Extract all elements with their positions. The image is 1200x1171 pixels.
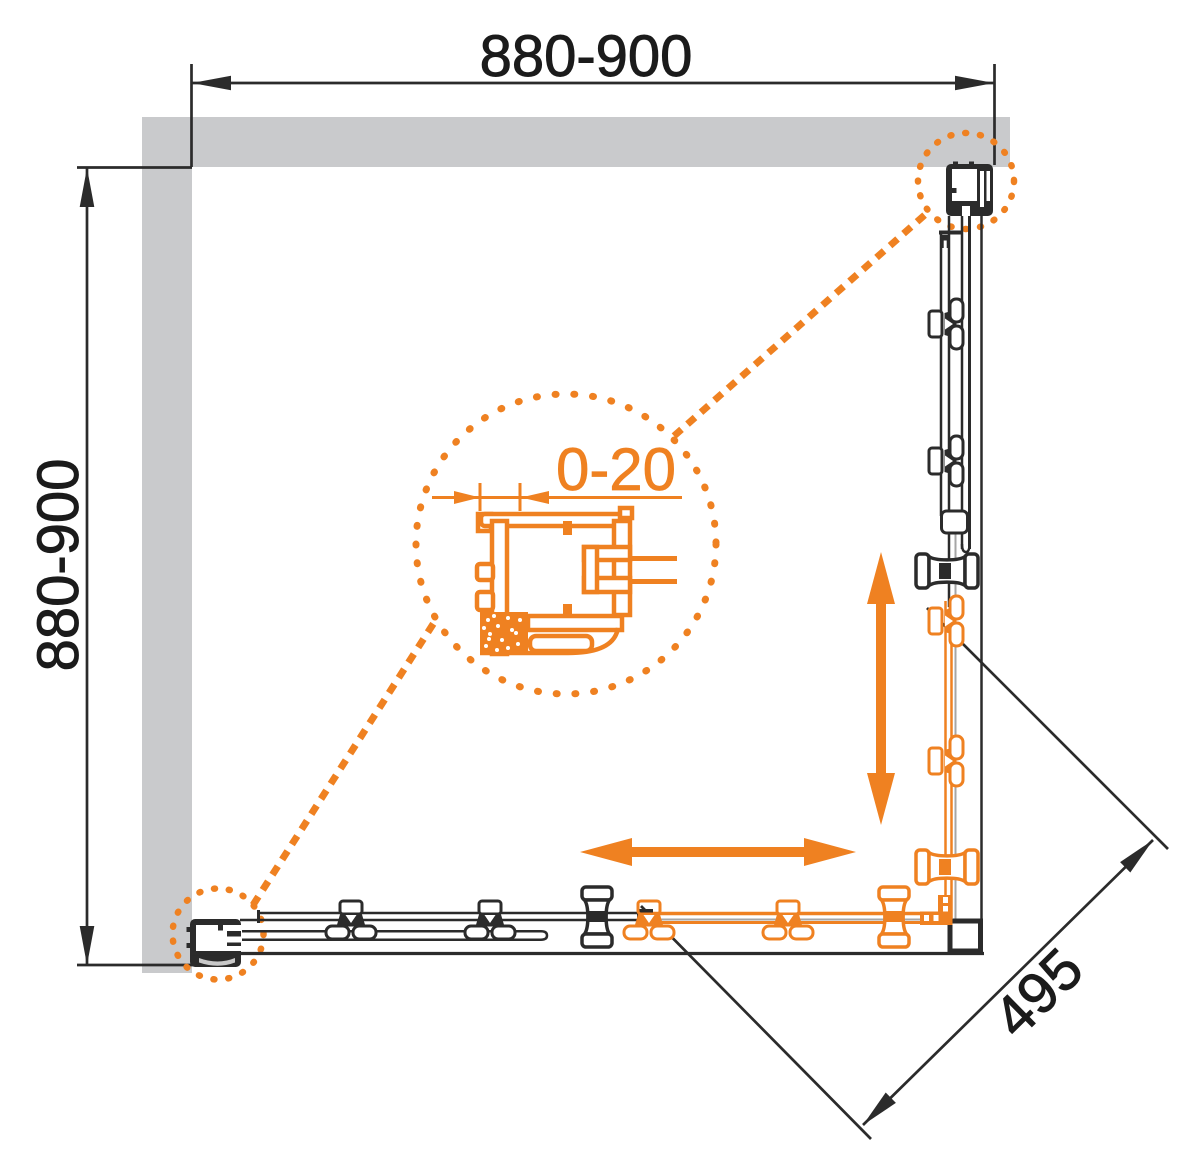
svg-text:0-20: 0-20	[556, 436, 676, 503]
svg-text:880-900: 880-900	[26, 459, 91, 672]
svg-text:880-900: 880-900	[480, 24, 693, 89]
